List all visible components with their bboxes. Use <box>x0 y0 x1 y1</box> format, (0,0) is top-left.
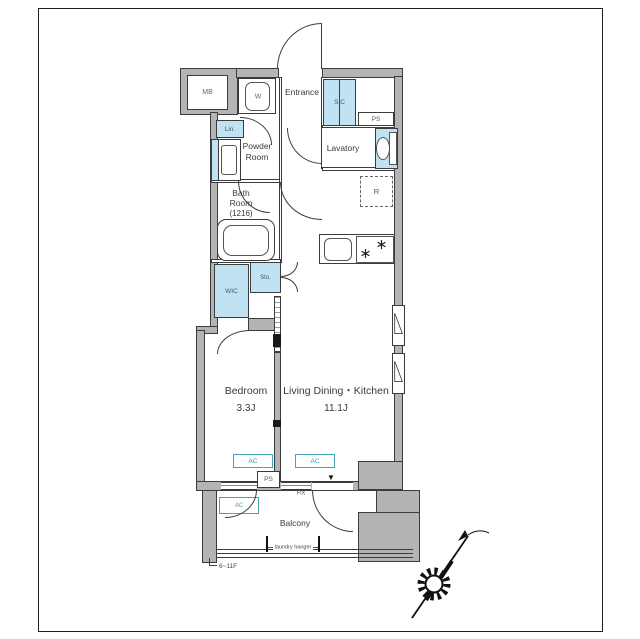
window-swing-triangle <box>393 305 404 346</box>
burner-icon <box>360 248 371 259</box>
floor-range-label: 6~11F <box>219 564 237 571</box>
wall-top-right <box>322 68 403 78</box>
room-label-entrance: Entrance <box>285 88 319 97</box>
window-swing-triangle <box>393 353 404 394</box>
fridge-label: R <box>374 187 379 196</box>
wall-top-left <box>236 68 279 78</box>
toilet-bowl-icon <box>376 137 390 160</box>
room-label-powder-1: Powder <box>243 142 272 151</box>
room-size-bedroom: 3.3J <box>237 404 256 414</box>
room-label-bedroom: Bedroom <box>225 386 268 397</box>
walk-in-closet: WIC <box>214 264 249 318</box>
room-size-ldk: 11.1J <box>324 404 348 414</box>
meter-box: MB <box>187 75 228 110</box>
storage-label: Sto. <box>260 275 271 281</box>
kitchen-sink-icon <box>324 238 352 261</box>
wall-balcony-right-upper <box>376 490 420 513</box>
washer-label: W <box>255 94 262 101</box>
wall-corner-block <box>358 461 403 490</box>
fix-window-label: FIX <box>297 491 306 497</box>
washer-space: W <box>238 78 276 114</box>
burner-icon <box>376 239 387 250</box>
casement-window-icon <box>392 353 405 394</box>
meter-box-label: MB <box>202 89 213 96</box>
wic-label: WIC <box>225 288 238 295</box>
ac-unit-living: AC <box>295 454 335 468</box>
direction-marker: ▼ <box>327 474 335 482</box>
ps-bottom-label: PS <box>264 476 273 483</box>
wall-divider <box>274 352 281 482</box>
sic-panel-divider <box>339 79 340 126</box>
room-label-lavatory: Lavatory <box>327 144 360 153</box>
room-label-bath-1: Bath <box>232 189 250 198</box>
wall-balcony-pillar <box>202 490 217 563</box>
laundry-hanger-tick <box>318 536 320 552</box>
vanity-sink-icon <box>221 145 237 175</box>
ac-living-label: AC <box>310 458 319 465</box>
bathtub-inner <box>223 225 269 256</box>
room-label-powder-2: Room <box>246 153 269 162</box>
vanity-cabinet <box>211 139 219 181</box>
balcony-door-opening <box>312 482 353 490</box>
floor-plan: MB W SIC PS Lin. R Sto. WIC <box>0 0 640 639</box>
fridge-space: R <box>360 176 393 207</box>
toilet-tank-icon <box>389 132 397 165</box>
partition-stop-mid <box>273 420 281 427</box>
balcony-railing-line <box>217 557 413 558</box>
pipe-space-bottom: PS <box>257 471 280 488</box>
ps-top-label: PS <box>372 116 381 123</box>
wall-hall-left <box>279 77 282 263</box>
linen-label: Lin. <box>225 126 235 133</box>
ac-unit-bedroom: AC <box>233 454 273 468</box>
wall-left-lower <box>196 330 205 490</box>
pipe-space-top: PS <box>358 112 394 126</box>
balcony-railing-line <box>217 549 413 550</box>
entrance-door-leaf <box>321 23 322 69</box>
room-label-ldk: Living Dining・Kitchen <box>283 386 389 397</box>
bedroom-window-mullion <box>221 485 257 486</box>
laundry-hanger-label: laundry hanger <box>275 545 312 551</box>
room-label-bath-2: Room <box>230 199 253 208</box>
compass-icon <box>398 518 522 634</box>
ac-bedroom-label: AC <box>248 458 257 465</box>
casement-window-icon <box>392 305 405 346</box>
fix-window <box>281 482 311 490</box>
laundry-hanger-tick <box>266 536 268 552</box>
storage-closet: Sto. <box>250 262 281 293</box>
bedroom-balcony-window <box>221 482 257 490</box>
floor-range-leader-h <box>210 565 217 566</box>
fix-window-mullion <box>281 485 311 486</box>
balcony-railing-line <box>217 553 413 554</box>
room-label-balcony: Balcony <box>280 519 310 528</box>
room-label-bath-3: (1216) <box>229 210 252 218</box>
partition-stop-top <box>273 334 281 347</box>
